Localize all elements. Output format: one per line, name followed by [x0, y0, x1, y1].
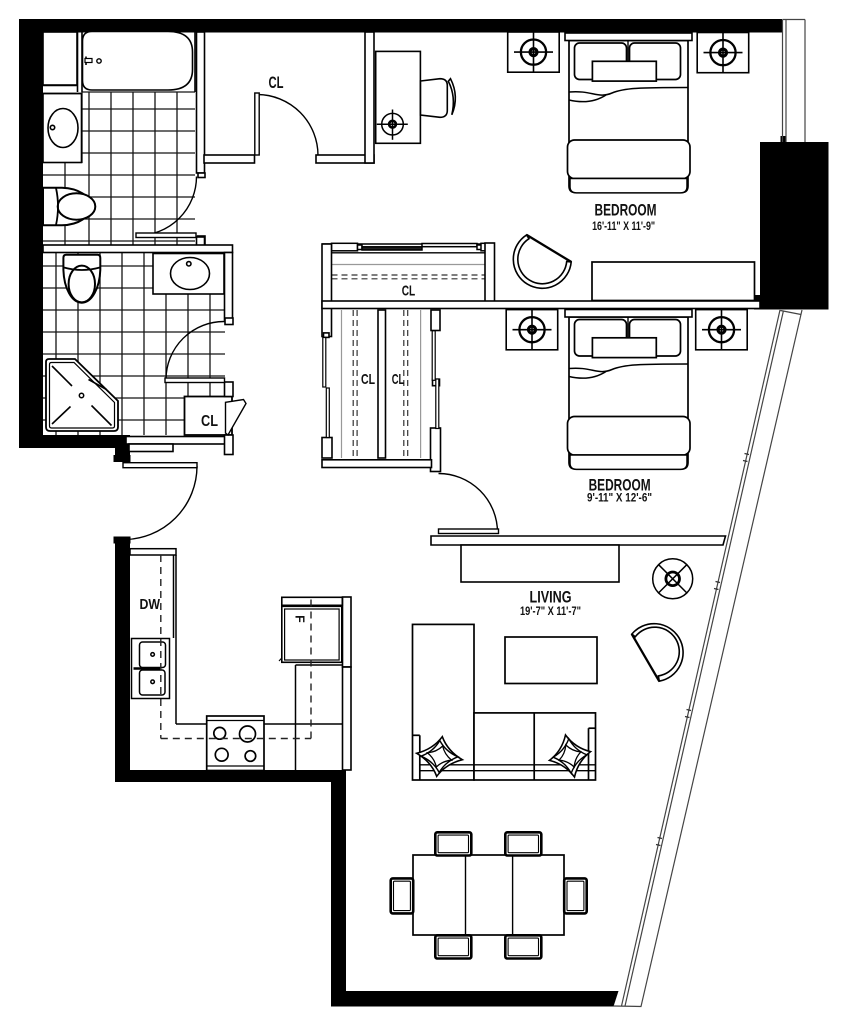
svg-text:19'-7" X 11'-7": 19'-7" X 11'-7": [520, 604, 581, 618]
svg-text:16'-11" X 11'-9": 16'-11" X 11'-9": [592, 219, 655, 233]
svg-text:CL: CL: [402, 283, 416, 300]
svg-text:CL: CL: [361, 371, 375, 388]
svg-text:DW: DW: [140, 596, 161, 613]
svg-text:9'-11" X 12'-6": 9'-11" X 12'-6": [587, 491, 652, 505]
svg-text:CL: CL: [269, 73, 284, 92]
svg-text:CL: CL: [392, 371, 405, 388]
svg-text:BEDROOM: BEDROOM: [595, 202, 657, 220]
svg-text:F: F: [293, 615, 307, 623]
svg-text:CL: CL: [201, 413, 218, 430]
